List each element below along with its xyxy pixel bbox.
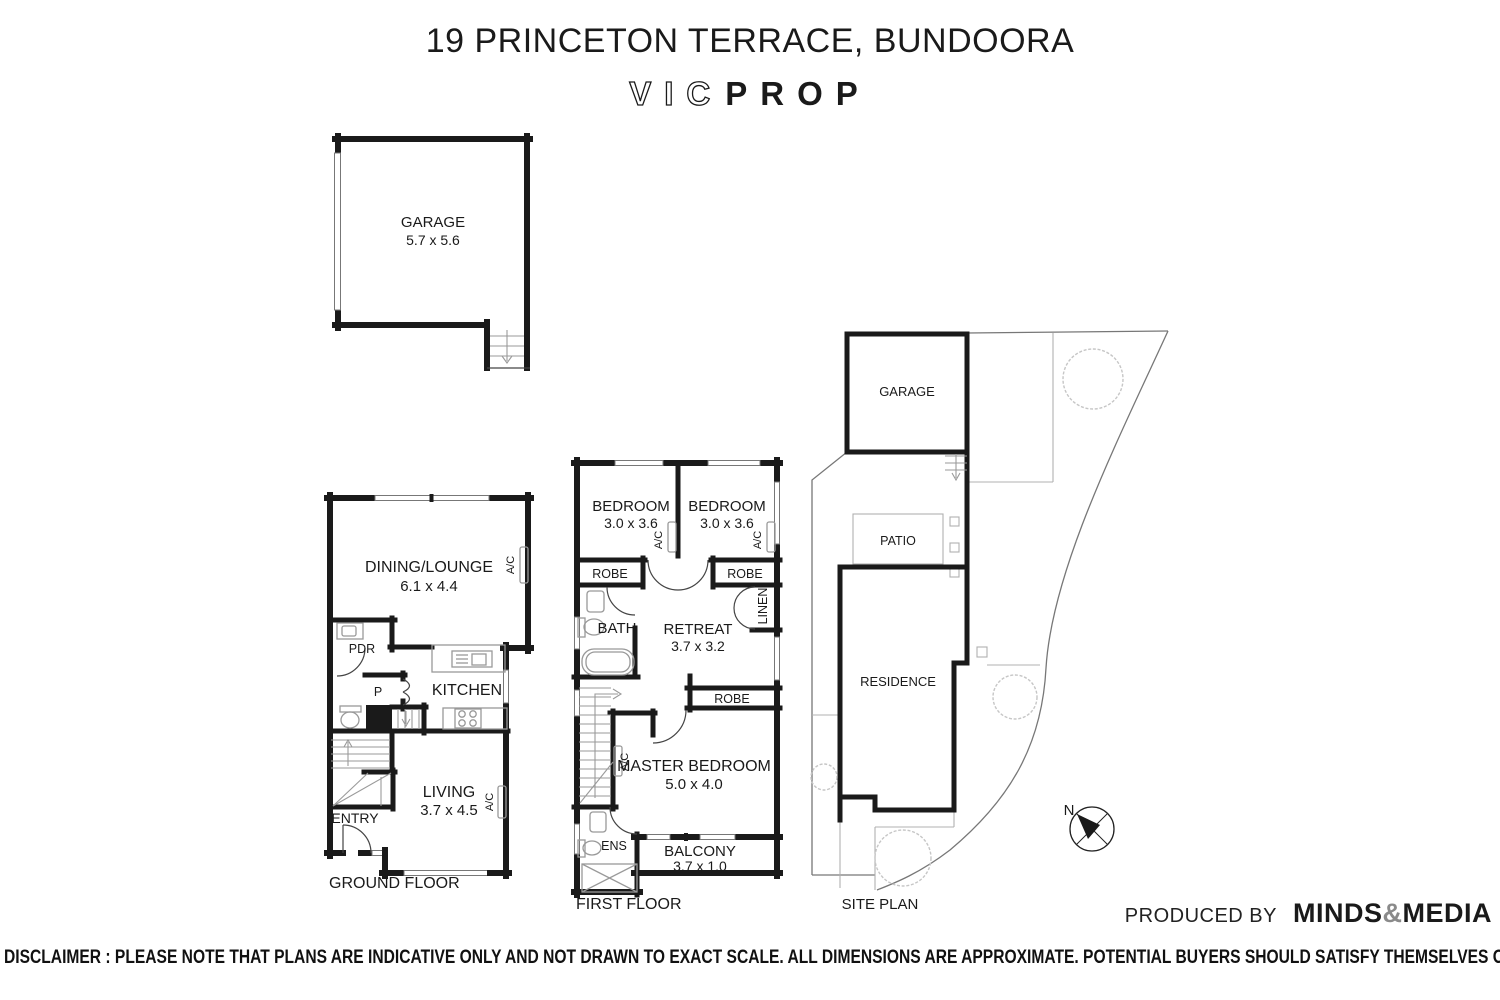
bathtub-icon: [582, 649, 634, 675]
tree-icon: [811, 764, 837, 790]
disclaimer-text: DISCLAIMER : PLEASE NOTE THAT PLANS ARE …: [4, 946, 1500, 969]
room-label-robe1: ROBE: [592, 567, 627, 581]
ground-floor-plan: DINING/LOUNGE 6.1 x 4.4 PDR P KITCHEN LI…: [327, 494, 531, 892]
room-dims-balcony: 3.7 x 1.0: [673, 858, 727, 874]
site-boundary-curve: [877, 331, 1168, 890]
room-dims-retreat: 3.7 x 3.2: [671, 638, 725, 654]
room-dims-living: 3.7 x 4.5: [420, 802, 478, 819]
duct-void: [366, 705, 392, 731]
minds-media-logo: MINDS&MEDIA: [1293, 898, 1492, 929]
ac-label: A/C: [752, 531, 764, 549]
linen-door-arc: [734, 587, 755, 608]
room-dims-bedroom1: 3.0 x 3.6: [604, 515, 658, 531]
master-door-arc: [653, 710, 686, 743]
cooktop-icon: [443, 708, 507, 729]
room-label-bedroom2: BEDROOM: [688, 498, 766, 515]
compass-icon: N: [1064, 802, 1114, 851]
window: [615, 461, 663, 466]
kitchen-bench-icon: [432, 645, 505, 672]
window: [647, 835, 670, 840]
window: [575, 690, 580, 716]
ac-unit: [767, 522, 775, 552]
room-dims-bedroom2: 3.0 x 3.6: [700, 515, 754, 531]
room-label-entry: ENTRY: [331, 810, 379, 826]
room-label-robe2: ROBE: [727, 567, 762, 581]
down-stairs-icon: [398, 709, 419, 729]
room-dims-dining: 6.1 x 4.4: [400, 578, 458, 595]
room-label-retreat: RETREAT: [664, 621, 733, 638]
room-label-living: LIVING: [423, 784, 475, 801]
floorplan-canvas: GARAGE 5.7 x 5.6: [0, 0, 1500, 1000]
plan-label-first-floor: FIRST FLOOR: [576, 896, 682, 913]
room-label-robe3: ROBE: [714, 692, 749, 706]
pdr-toilet-icon: [340, 706, 361, 728]
window: [575, 617, 580, 649]
ens-toilet-icon: [578, 840, 601, 857]
minds-media-logo-amp: &: [1383, 898, 1403, 928]
site-plan: N GARAGE PATIO RESIDENCE SITE PLAN: [811, 331, 1168, 913]
window: [700, 835, 735, 840]
shower-icon: [582, 864, 637, 892]
site-label-patio: PATIO: [880, 534, 916, 548]
room-label-pdr: PDR: [349, 642, 375, 656]
garage-door: [335, 153, 341, 310]
ac-label: A/C: [653, 531, 665, 549]
ac-unit: [668, 522, 676, 552]
window: [775, 637, 780, 680]
garage-floor-plan: GARAGE 5.7 x 5.6: [335, 136, 531, 368]
room-label-kitchen: KITCHEN: [432, 682, 502, 699]
entry-door-arc: [343, 825, 371, 853]
produced-by-label: PRODUCED BY: [1125, 905, 1277, 928]
tree-icon: [875, 830, 931, 886]
room-label-ens: ENS: [601, 839, 627, 853]
bedroom2-door-arc: [678, 560, 708, 590]
ens-sink-icon: [590, 812, 606, 832]
plan-label-site-plan: SITE PLAN: [842, 896, 919, 913]
ac-label: A/C: [484, 793, 496, 811]
garage-stairs-icon: [490, 330, 524, 363]
compass-north-label: N: [1064, 802, 1075, 819]
room-label-linen: LINEN: [756, 588, 770, 625]
garage-room-dims: 5.7 x 5.6: [406, 232, 460, 248]
site-stairs-icon: [945, 454, 967, 480]
bath-sink-icon: [587, 591, 604, 612]
room-label-dining: DINING/LOUNGE: [365, 559, 493, 576]
room-dims-master: 5.0 x 4.0: [665, 776, 723, 793]
produced-by-block: PRODUCED BY MINDS&MEDIA: [1125, 898, 1492, 929]
minds-media-logo-minds: MINDS: [1293, 898, 1383, 928]
tree-icon: [993, 675, 1037, 719]
bath-door-arc: [607, 587, 635, 615]
room-label-bath: BATH: [598, 620, 637, 637]
bedroom1-door-arc: [648, 560, 678, 590]
first-floor-plan: BEDROOM 3.0 x 3.6 BEDROOM 3.0 x 3.6 ROBE…: [574, 460, 780, 913]
window: [504, 670, 509, 703]
window: [708, 461, 760, 466]
pdr-sink-icon: [337, 623, 363, 639]
room-label-bedroom1: BEDROOM: [592, 498, 670, 515]
window: [575, 824, 580, 854]
plan-label-ground-floor: GROUND FLOOR: [329, 875, 460, 892]
floorplan-page: { "header": { "title": "19 PRINCETON TER…: [0, 0, 1500, 1000]
ac-label: A/C: [505, 556, 517, 574]
room-label-pantry: P: [374, 685, 382, 699]
room-label-master: MASTER BEDROOM: [617, 758, 771, 775]
garage-room-label: GARAGE: [401, 214, 465, 231]
minds-media-logo-media: MEDIA: [1403, 898, 1493, 928]
tree-icon: [1063, 349, 1123, 409]
ac-label: A/C: [619, 753, 631, 771]
site-label-residence: RESIDENCE: [860, 674, 936, 689]
site-label-garage: GARAGE: [879, 384, 935, 399]
